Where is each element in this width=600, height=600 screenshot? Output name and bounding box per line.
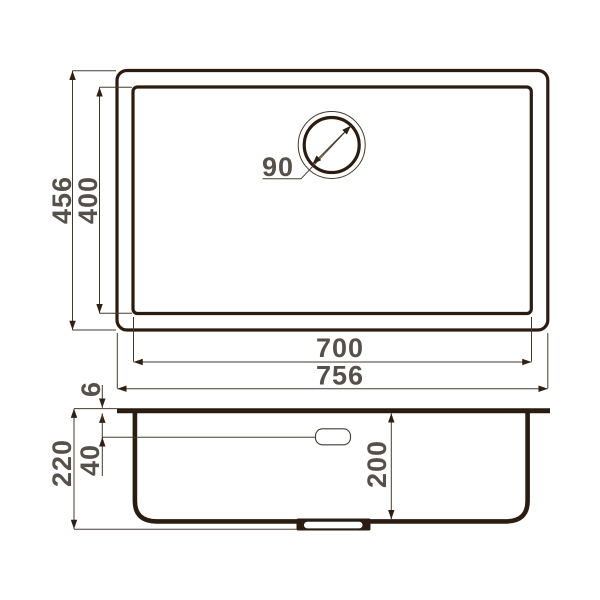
- dim-6-label: 6: [76, 381, 106, 397]
- dim-220-label: 220: [47, 439, 77, 487]
- sink-dimension-drawing-canvas: 456 400 90 700 756 6 40 220 200: [0, 0, 600, 600]
- sink-dimension-drawing: 456 400 90 700 756 6 40 220 200: [0, 0, 600, 600]
- drain-fitting-slot: [304, 522, 363, 529]
- drain-diameter-arrow-line: [312, 126, 351, 165]
- bowl-opening-outline: [133, 87, 531, 314]
- overflow-opening: [316, 429, 351, 445]
- dim-400-label: 400: [73, 176, 103, 224]
- dim-756-label: 756: [316, 361, 364, 391]
- dim-700-label: 700: [316, 333, 364, 363]
- top-view-dimensions: [73, 71, 548, 389]
- side-view-dimensions: [74, 385, 391, 529]
- dim-40-label: 40: [75, 444, 105, 476]
- outer-rim-outline: [117, 71, 548, 331]
- top-view: [117, 71, 548, 331]
- side-view: [102, 411, 550, 531]
- dim-90-label: 90: [262, 152, 294, 182]
- dim-200-label: 200: [362, 440, 392, 488]
